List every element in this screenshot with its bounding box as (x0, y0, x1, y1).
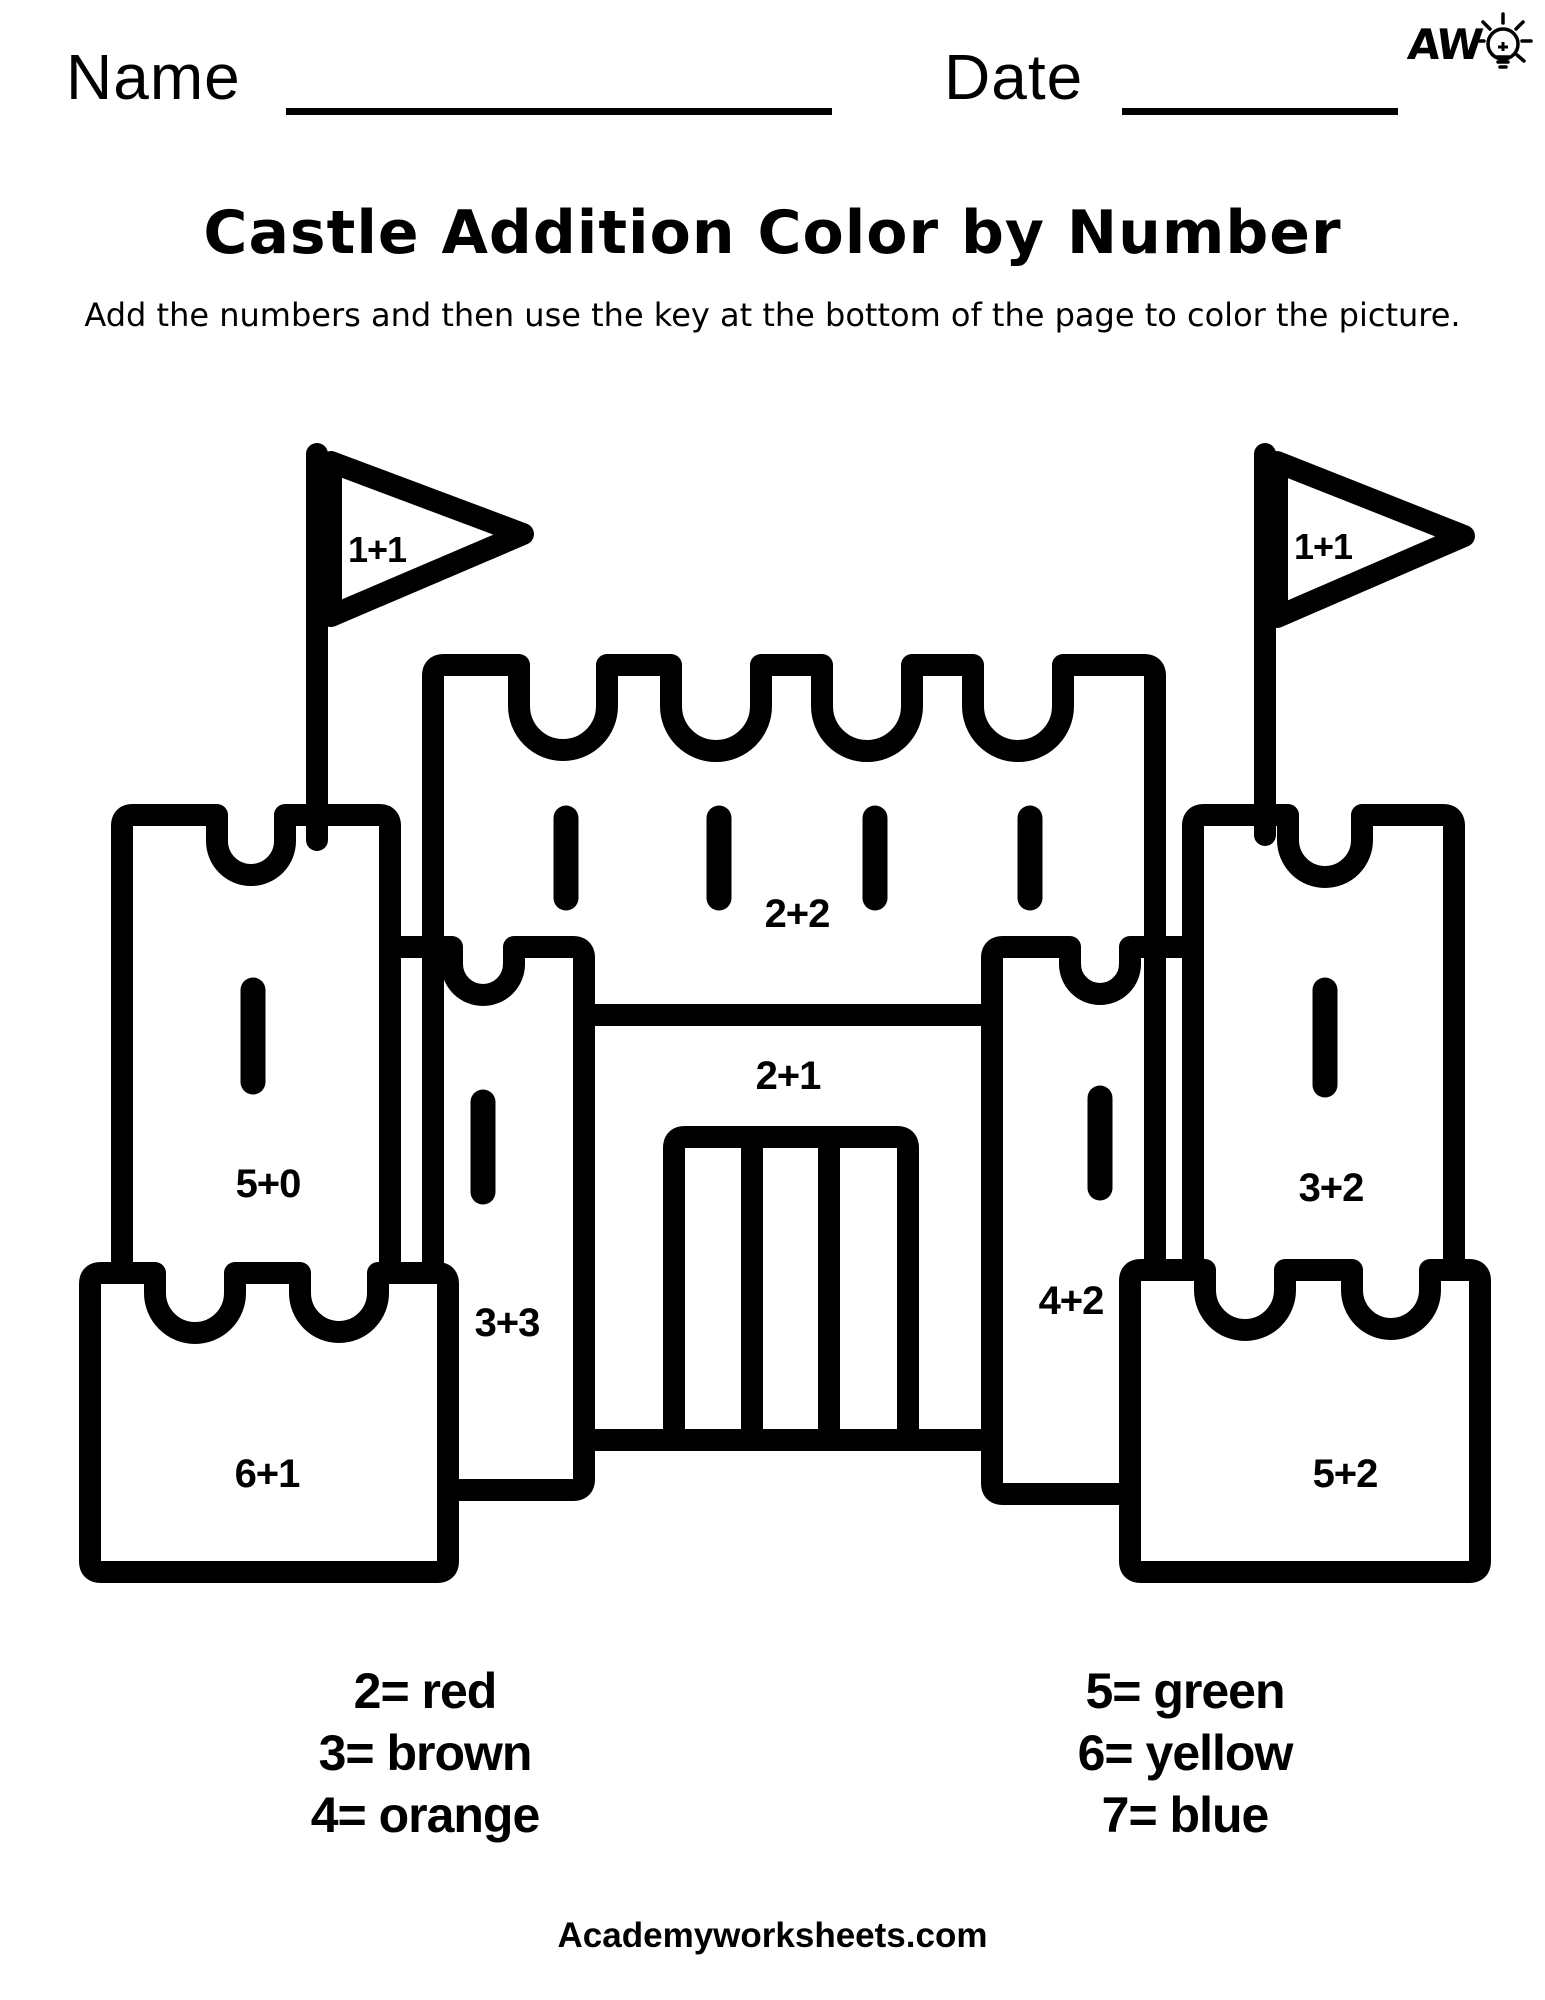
key-item-orange: 4= orange (245, 1784, 605, 1846)
problem-tower-right: 3+2 (1299, 1166, 1364, 1210)
problem-base-left: 6+1 (235, 1452, 301, 1496)
key-item-green: 5= green (1005, 1660, 1365, 1722)
problem-main-wall: 2+2 (765, 892, 830, 936)
problem-base-right: 5+2 (1313, 1452, 1378, 1496)
site-footer: Academyworksheets.com (0, 1916, 1545, 1956)
key-item-brown: 3= brown (245, 1722, 605, 1784)
color-key-right-column: 5= green 6= yellow 7= blue (1005, 1660, 1365, 1846)
problem-inner-tower-right: 4+2 (1039, 1279, 1104, 1323)
problem-flag-left: 1+1 (348, 529, 407, 570)
problem-gate-wall: 2+1 (756, 1054, 822, 1098)
castle-door-frame (674, 1137, 908, 1440)
problem-tower-left: 5+0 (236, 1162, 301, 1206)
key-item-blue: 7= blue (1005, 1784, 1365, 1846)
problem-inner-tower-left: 3+3 (475, 1301, 540, 1345)
key-item-red: 2= red (245, 1660, 605, 1722)
worksheet-page: Name Date AW Castle Addition Color by Nu… (0, 0, 1545, 2000)
base-right-outline (1130, 1270, 1480, 1572)
base-left-outline (90, 1273, 448, 1572)
problem-flag-right: 1+1 (1294, 526, 1353, 567)
key-item-yellow: 6= yellow (1005, 1722, 1365, 1784)
color-key-left-column: 2= red 3= brown 4= orange (245, 1660, 605, 1846)
